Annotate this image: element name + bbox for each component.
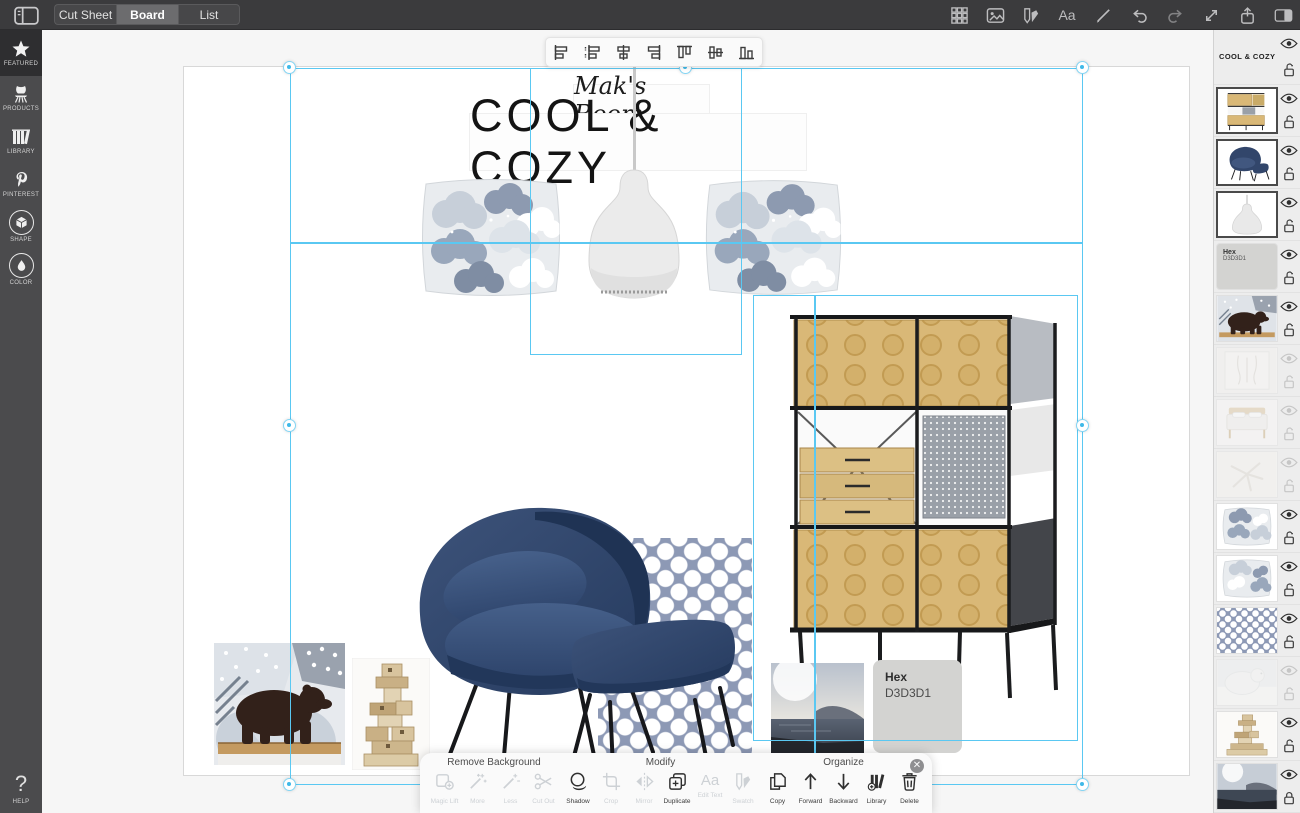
question-icon: ? (15, 771, 27, 797)
copy-icon (767, 771, 788, 797)
library-add-icon (866, 771, 887, 797)
copy-button[interactable]: Copy (761, 771, 794, 805)
grid-view-icon[interactable] (948, 4, 970, 26)
layer-thumbnail: Hex D3D3D1 (1216, 243, 1278, 290)
align-left-icon[interactable] (550, 41, 572, 63)
wand-less-icon (500, 771, 521, 797)
swatch-button[interactable]: Swatch (727, 771, 760, 805)
layer-thumbnail (1216, 295, 1278, 342)
layer-thumbnail (1216, 451, 1278, 498)
star-icon (11, 39, 31, 59)
sidebar-item-label: LIBRARY (7, 149, 35, 155)
swatch-icon[interactable] (1020, 4, 1042, 26)
seascape-photo[interactable] (771, 663, 864, 758)
selection-handle-bottom-left[interactable] (283, 778, 296, 791)
cut-out-button[interactable]: Cut Out (527, 771, 560, 805)
image-icon[interactable] (984, 4, 1006, 26)
lock-open-icon[interactable] (1283, 374, 1296, 390)
undo-icon[interactable] (1128, 4, 1150, 26)
layers-panel: COOL & COZY Hex D3D3D1 (1213, 30, 1300, 813)
group-organize: Organize Copy Forward Backward Library (761, 757, 926, 813)
visibility-eye-icon[interactable] (1280, 92, 1298, 105)
visibility-eye-icon[interactable] (1280, 248, 1298, 261)
layer-row-bear-figurine[interactable] (1214, 293, 1300, 345)
visibility-eye-icon[interactable] (1280, 352, 1298, 365)
armchair-image[interactable] (385, 490, 740, 780)
draw-icon[interactable] (1092, 4, 1114, 26)
sidebar-item-color[interactable]: COLOR (0, 248, 42, 291)
visibility-eye-icon[interactable] (1280, 508, 1298, 521)
crop-icon (601, 771, 622, 797)
sidebar-toggle-icon[interactable] (14, 6, 40, 24)
lock-open-icon[interactable] (1283, 478, 1296, 494)
sidebar-item-pinterest[interactable]: PINTEREST (0, 162, 42, 205)
visibility-eye-icon[interactable] (1280, 612, 1298, 625)
lock-open-icon[interactable] (1283, 426, 1296, 442)
wand-more-icon (467, 771, 488, 797)
layer-thumbnail (1216, 139, 1278, 186)
trash-icon (899, 771, 920, 797)
sidebar-item-featured[interactable]: FEATURED (0, 30, 42, 76)
visibility-eye-icon[interactable] (1280, 716, 1298, 729)
visibility-eye-icon[interactable] (1280, 404, 1298, 417)
lock-open-icon[interactable] (1283, 634, 1296, 650)
crop-button[interactable]: Crop (595, 771, 628, 805)
align-bottom-icon[interactable] (735, 41, 757, 63)
align-top-icon[interactable] (674, 41, 696, 63)
swatch-icon (733, 771, 754, 797)
layer-row-starfish[interactable] (1214, 449, 1300, 501)
shadow-button[interactable]: Shadow (562, 771, 595, 805)
align-center-h-icon[interactable] (612, 41, 634, 63)
lamp-cord (633, 66, 636, 182)
forward-button[interactable]: Forward (794, 771, 827, 805)
lock-closed-icon[interactable] (1283, 790, 1296, 806)
delete-button[interactable]: Delete (893, 771, 926, 805)
lock-open-icon[interactable] (1283, 738, 1296, 754)
duplicate-icon (667, 771, 688, 797)
top-bar: Cut Sheet Board List Aa (0, 0, 1300, 30)
layer-row-bed[interactable] (1214, 397, 1300, 449)
magic-lift-icon (434, 771, 455, 797)
align-right-icon[interactable] (643, 41, 665, 63)
layer-row-seascape-photo[interactable] (1214, 761, 1300, 813)
sidebar-item-products[interactable]: PRODUCTS (0, 76, 42, 119)
layer-row-armchair[interactable] (1214, 137, 1300, 189)
layer-row-cloud-pillow[interactable] (1214, 501, 1300, 553)
lock-open-icon[interactable] (1283, 530, 1296, 546)
layer-thumbnail (1216, 763, 1278, 810)
group-label: Modify (562, 757, 760, 771)
visibility-eye-icon[interactable] (1280, 144, 1298, 157)
layer-row-title-text[interactable]: COOL & COZY (1214, 30, 1300, 85)
layer-thumbnail (1216, 191, 1278, 238)
pendant-lamp[interactable] (583, 168, 685, 310)
alignment-guide-vertical (814, 295, 816, 785)
selection-handle-bottom-right[interactable] (1076, 778, 1089, 791)
visibility-eye-icon[interactable] (1280, 37, 1298, 50)
layer-row-cloud-pillow-2[interactable] (1214, 553, 1300, 605)
lock-open-icon[interactable] (1283, 218, 1296, 234)
sidebar-item-label: FEATURED (4, 61, 38, 67)
layer-thumbnail (1216, 503, 1278, 550)
visibility-eye-icon[interactable] (1280, 664, 1298, 677)
sidebar-item-label: PINTEREST (3, 192, 39, 198)
layer-thumbnail (1216, 711, 1278, 758)
layer-thumbnail (1216, 87, 1278, 134)
layer-thumbnail (1216, 607, 1278, 654)
tab-cut-sheet[interactable]: Cut Sheet (54, 4, 116, 25)
layer-thumbnail (1216, 347, 1278, 394)
text-icon[interactable]: Aa (1056, 4, 1078, 26)
left-sidebar: FEATURED PRODUCTS LIBRARY PINTEREST SHAP… (0, 30, 42, 813)
edit-text-button[interactable]: Aa Edit Text (694, 771, 727, 805)
fullscreen-icon[interactable] (1200, 4, 1222, 26)
board-title[interactable]: COOL & COZY (469, 113, 807, 171)
lock-open-icon[interactable] (1283, 114, 1296, 130)
selection-handle-top-right[interactable] (1076, 61, 1089, 74)
visibility-eye-icon[interactable] (1280, 768, 1298, 781)
selection-handle-mid-right[interactable] (1076, 419, 1089, 432)
less-button[interactable]: Less (494, 771, 527, 805)
chair-icon (11, 84, 31, 104)
books-icon (11, 127, 31, 147)
selection-handle-mid-left[interactable] (283, 419, 296, 432)
sidebar-item-label: COLOR (10, 280, 33, 286)
layer-row-dot-pattern[interactable] (1214, 605, 1300, 657)
layer-row-pendant-lamp[interactable] (1214, 189, 1300, 241)
group-label: Remove Background (428, 757, 560, 771)
group-label: Organize (761, 757, 926, 771)
shadow-icon (568, 771, 589, 797)
sidebar-item-label: SHAPE (10, 237, 32, 243)
view-segmented-control: Cut Sheet Board List (54, 4, 240, 25)
sidebar-item-shape[interactable]: SHAPE (0, 205, 42, 248)
tab-board[interactable]: Board (116, 4, 178, 25)
sidebar-item-help[interactable]: ? HELP (0, 771, 42, 805)
hex-swatch-label: Hex (885, 670, 962, 684)
arrow-up-icon (800, 771, 821, 797)
distribute-left-icon[interactable] (581, 41, 603, 63)
lock-open-icon[interactable] (1283, 686, 1296, 702)
mirror-icon (634, 771, 655, 797)
lock-open-icon[interactable] (1283, 166, 1296, 182)
hex-thumb-value: D3D3D1 (1223, 256, 1277, 262)
close-icon[interactable]: ✕ (910, 759, 924, 773)
layer-text-content: COOL & COZY (1219, 52, 1275, 61)
alignment-guide-horizontal (290, 242, 1083, 244)
redo-icon[interactable] (1164, 4, 1186, 26)
backward-button[interactable]: Backward (827, 771, 860, 805)
magic-lift-button[interactable]: Magic Lift (428, 771, 461, 805)
layer-row-storage-unit[interactable] (1214, 85, 1300, 137)
visibility-eye-icon[interactable] (1280, 560, 1298, 573)
hex-thumb-label: Hex (1223, 249, 1277, 256)
hex-swatch-value: D3D3D1 (885, 686, 962, 700)
layer-thumbnail (1216, 399, 1278, 446)
panel-toggle-icon[interactable] (1272, 4, 1294, 26)
board-canvas[interactable]: Mak's Room COOL & COZY (42, 30, 1213, 813)
cloud-pillow-right[interactable] (700, 172, 847, 303)
layer-row-wood-blocks[interactable] (1214, 709, 1300, 761)
pinterest-icon (11, 170, 31, 190)
alignment-toolbar (545, 37, 763, 67)
group-modify: Modify Shadow Crop Mirror Duplicate (562, 757, 760, 813)
align-middle-v-icon[interactable] (705, 41, 727, 63)
droplet-icon (9, 253, 34, 278)
hex-swatch-card[interactable]: Hex D3D3D1 (873, 660, 962, 753)
sidebar-item-label: HELP (13, 799, 30, 805)
arrow-down-icon (833, 771, 854, 797)
layer-row-wall-hanging[interactable] (1214, 345, 1300, 397)
cube-icon (9, 210, 34, 235)
group-remove-background: Remove Background Magic Lift More Less C… (428, 757, 560, 813)
lock-open-icon[interactable] (1283, 322, 1296, 338)
more-button[interactable]: More (461, 771, 494, 805)
sidebar-item-library[interactable]: LIBRARY (0, 119, 42, 162)
lock-open-icon[interactable] (1283, 270, 1296, 286)
library-button[interactable]: Library (860, 771, 893, 805)
scissors-icon (533, 771, 554, 797)
cloud-pillow-left[interactable] (416, 172, 566, 303)
storage-unit[interactable] (760, 300, 1069, 710)
selection-handle-top-left[interactable] (283, 61, 296, 74)
sidebar-item-label: PRODUCTS (3, 106, 39, 112)
lock-open-icon[interactable] (1283, 582, 1296, 598)
layer-row-polar-bear[interactable] (1214, 657, 1300, 709)
bear-figurine-image[interactable] (214, 643, 345, 765)
layer-thumbnail (1216, 659, 1278, 706)
layer-thumbnail (1216, 555, 1278, 602)
lock-open-icon[interactable] (1283, 62, 1296, 78)
layer-row-hex-swatch[interactable]: Hex D3D3D1 (1214, 241, 1300, 293)
visibility-eye-icon[interactable] (1280, 300, 1298, 313)
visibility-eye-icon[interactable] (1280, 456, 1298, 469)
edit-text-icon: Aa (701, 771, 719, 791)
duplicate-button[interactable]: Duplicate (661, 771, 694, 805)
context-toolbar: Remove Background Magic Lift More Less C… (420, 753, 932, 813)
visibility-eye-icon[interactable] (1280, 196, 1298, 209)
tab-list[interactable]: List (178, 4, 240, 25)
mirror-button[interactable]: Mirror (628, 771, 661, 805)
share-icon[interactable] (1236, 4, 1258, 26)
